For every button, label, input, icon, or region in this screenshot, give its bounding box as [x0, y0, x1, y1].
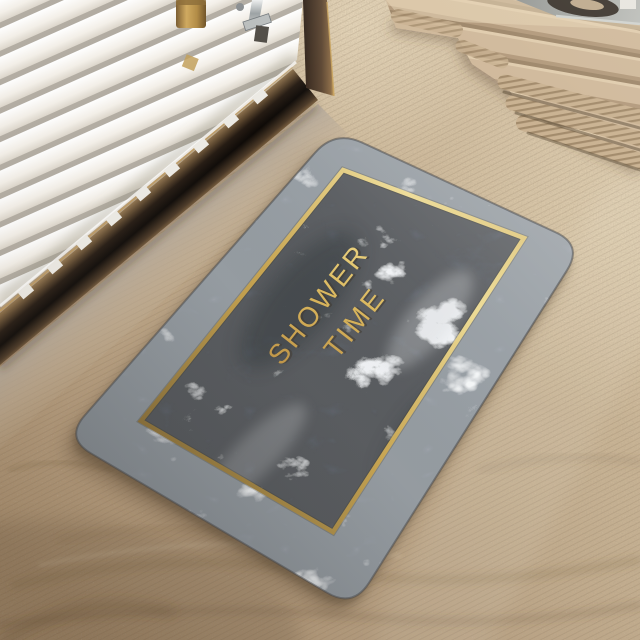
bathroom-scene: SHOWER TIME SHOWER TIME: [0, 0, 640, 640]
photo-light-grade: [0, 0, 640, 640]
bathroom-photo: SHOWER TIME SHOWER TIME: [0, 0, 640, 640]
